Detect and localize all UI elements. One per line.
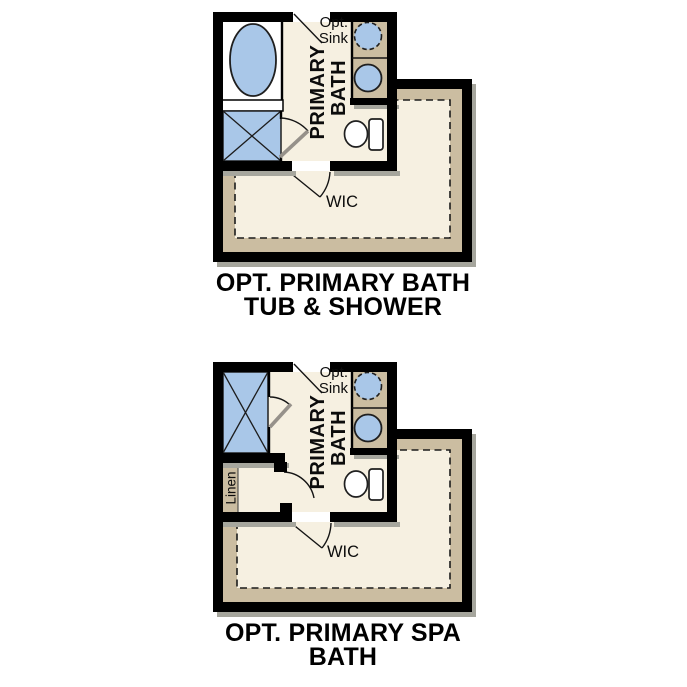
tub-shelf [222,100,283,111]
caption-spa-bath: OPT. PRIMARY SPA BATH [178,621,508,669]
opt-sink-label-line2: Sink [319,380,349,397]
vanity-counter [352,372,387,448]
sink-basin [355,415,382,442]
room-label-primary: PRIMARY [307,394,329,489]
vanity-counter [352,22,387,98]
floorplan-canvas: Opt. Sink PRIMARY BATH WIC [0,0,687,687]
toilet-tank [369,119,383,150]
toilet-bowl [345,471,368,497]
caption-line: TUB & SHOWER [178,295,508,319]
room-label-bath: BATH [328,410,350,466]
floorplan-tub-shower: Opt. Sink PRIMARY BATH WIC [213,12,476,267]
room-label-primary: PRIMARY [307,44,329,139]
opt-sink-label-line2: Sink [319,30,349,47]
bathtub [230,24,276,96]
opt-sink-label-line1: Opt. [320,14,348,31]
optional-sink-basin [355,373,382,400]
wic-label: WIC [326,193,358,211]
optional-sink-basin [355,23,382,50]
caption-tub-shower: OPT. PRIMARY BATH TUB & SHOWER [178,271,508,319]
wic-label: WIC [327,543,359,561]
toilet-bowl [345,121,368,147]
caption-line: OPT. PRIMARY SPA [178,621,508,645]
linen-label: Linen [224,471,239,504]
sink-basin [355,65,382,92]
caption-line: BATH [178,645,508,669]
caption-line: OPT. PRIMARY BATH [178,271,508,295]
opt-sink-label-line1: Opt. [320,364,348,381]
floorplan-spa-bath: Opt. Sink PRIMARY BATH WIC Linen [213,362,476,617]
tub-room [222,22,283,111]
room-label-bath: BATH [328,60,350,116]
toilet-tank [369,469,383,500]
